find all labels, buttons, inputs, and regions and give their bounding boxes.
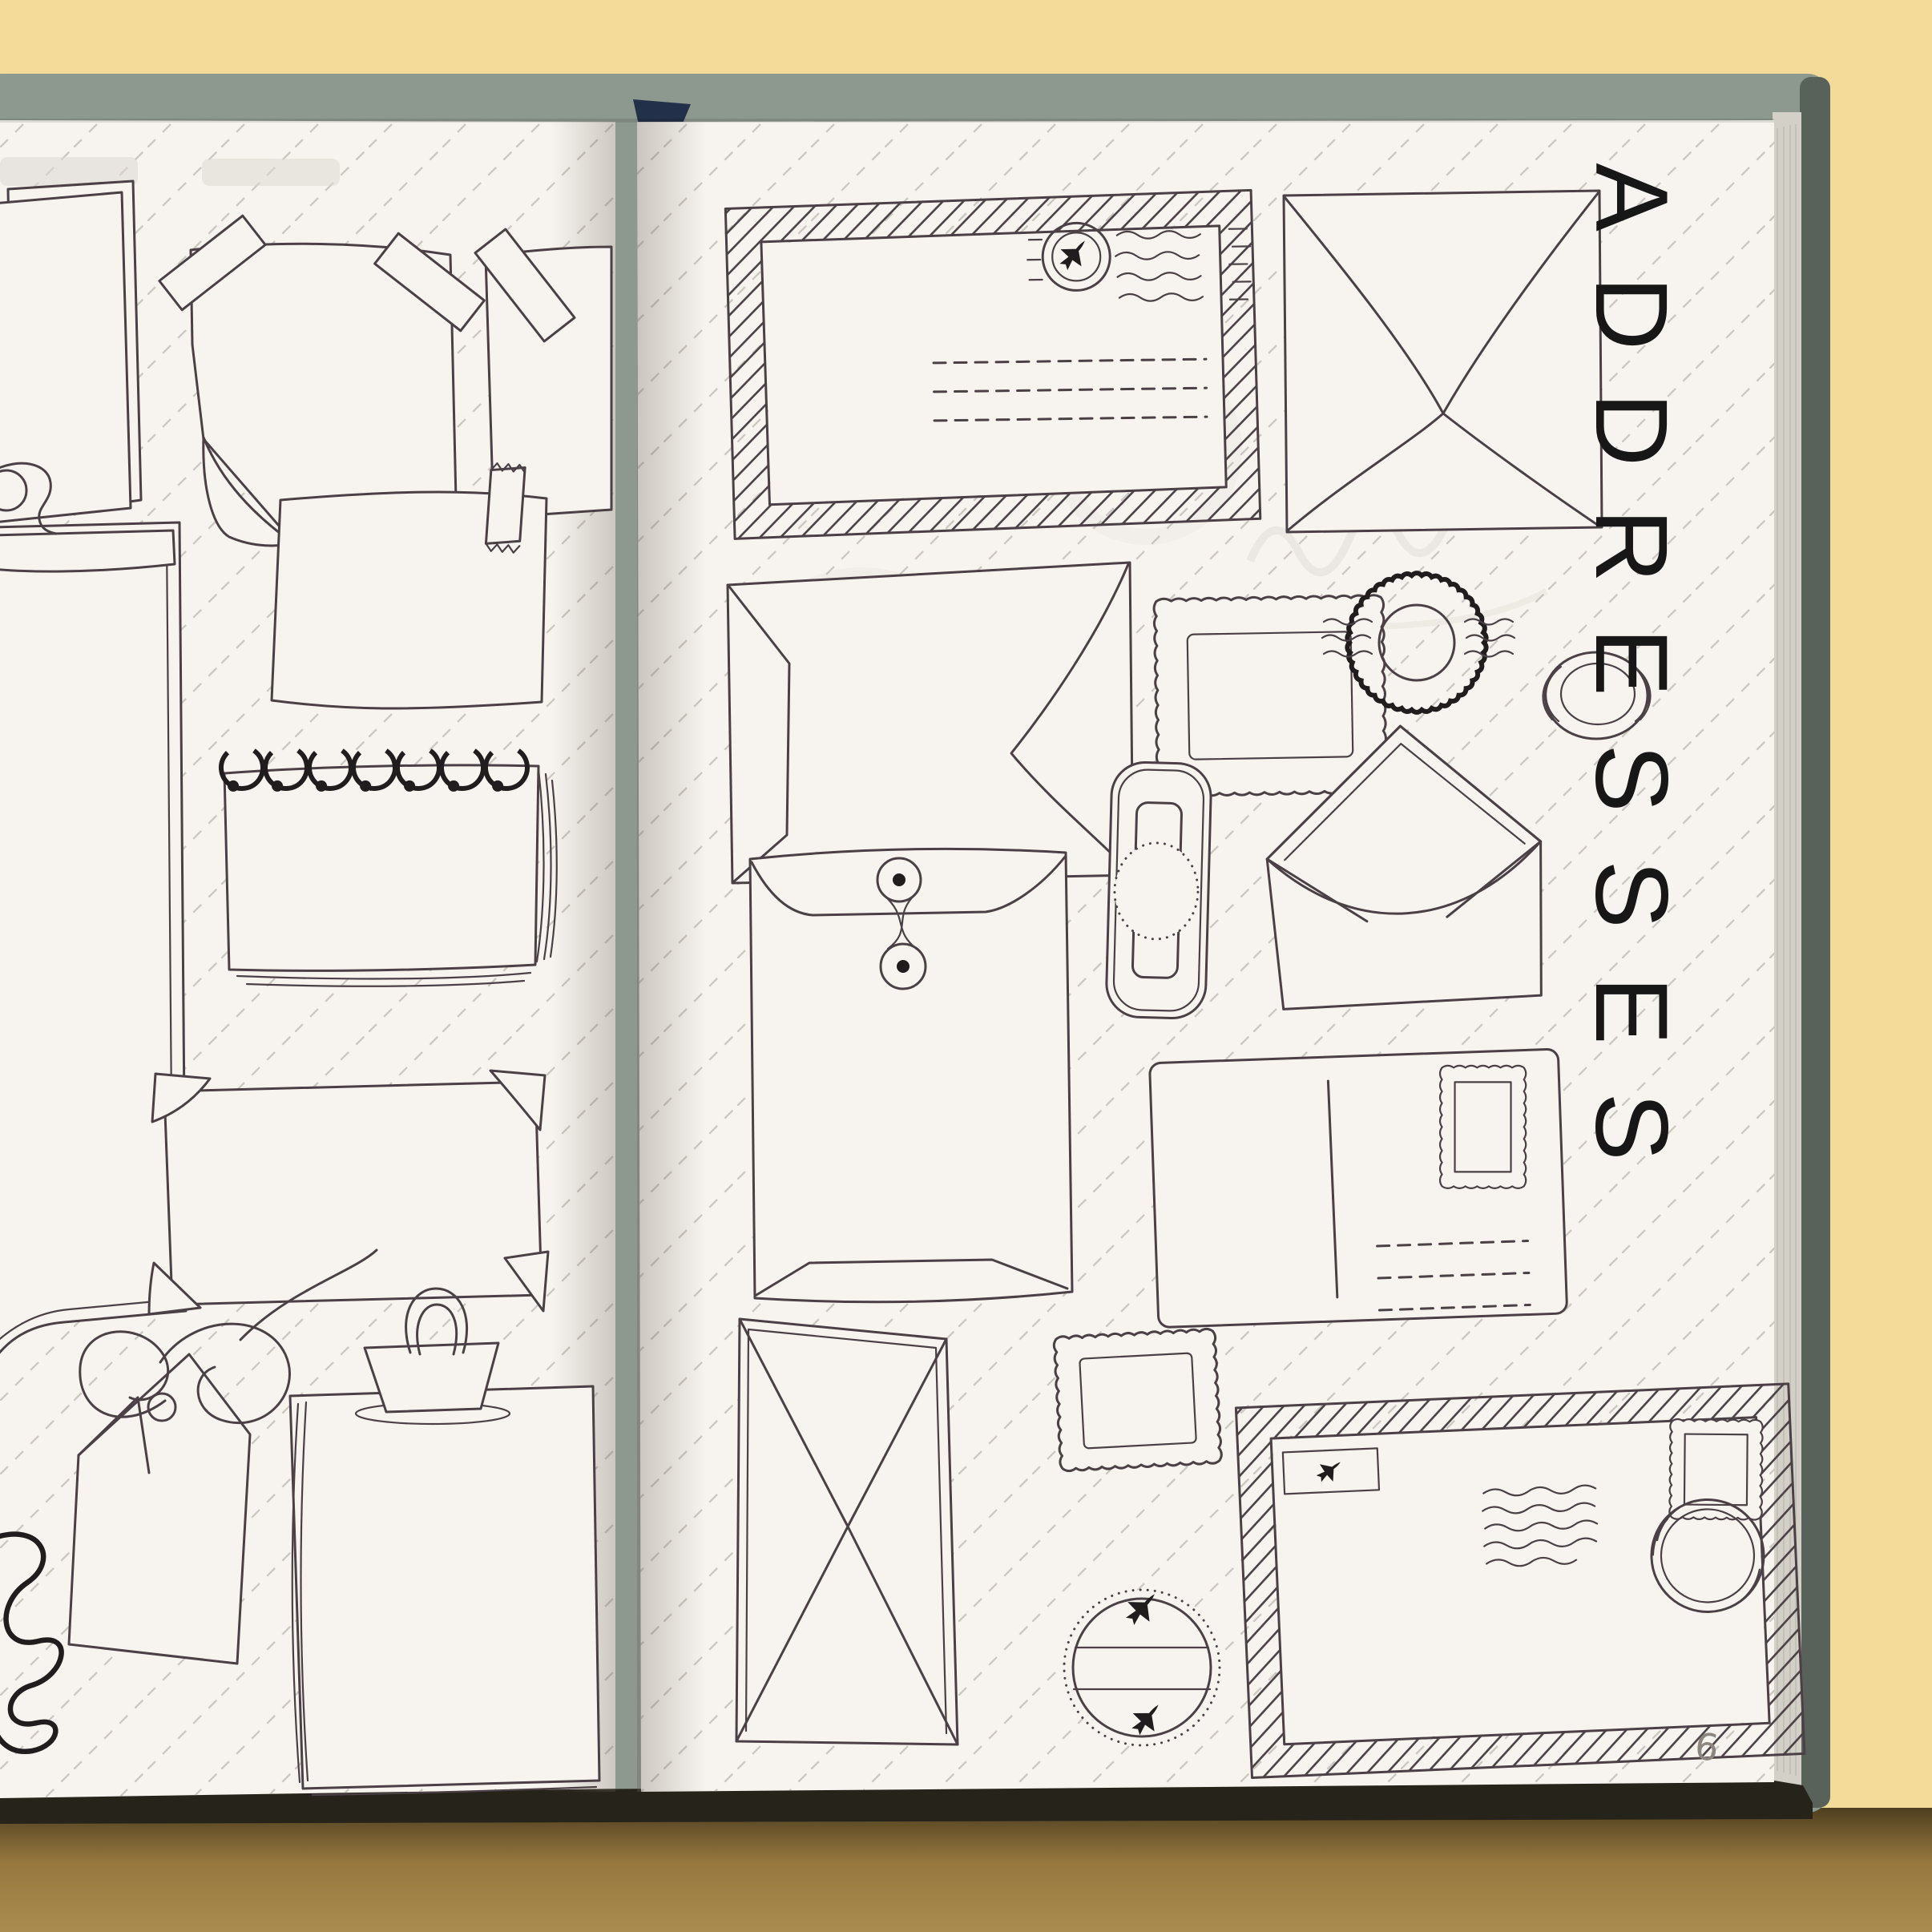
washi-taped-note bbox=[272, 463, 547, 708]
airmail-envelope-hatched-border bbox=[725, 190, 1260, 538]
string-tie-closure-envelope bbox=[750, 849, 1072, 1301]
envelope-back-diamond-flap bbox=[736, 1319, 958, 1744]
airmail-envelope-with-stamp-and-postmark bbox=[1236, 1384, 1804, 1778]
spiral-notepad bbox=[213, 739, 557, 986]
spiral-ring-dot bbox=[360, 780, 371, 792]
stacked-paper-sheets bbox=[0, 181, 141, 522]
postcard-stamp bbox=[1440, 1066, 1526, 1188]
seal-tag-rounded bbox=[1106, 761, 1212, 1018]
journal-scene: ADDRESSES 6 bbox=[0, 0, 1932, 1932]
title-letter: S bbox=[1574, 1092, 1688, 1160]
clip-plate bbox=[0, 530, 175, 571]
ghost-text-bar bbox=[202, 159, 340, 186]
photo-of-open-journal: ADDRESSES 6 bbox=[0, 0, 1932, 1932]
photo-corner-frame bbox=[149, 1071, 548, 1314]
cover-fore-edge bbox=[1800, 77, 1830, 1808]
title-letter: D bbox=[1574, 393, 1688, 466]
spiral-ring-dot bbox=[492, 780, 503, 792]
spiral-ring-dot bbox=[228, 780, 239, 792]
spiral-ring-dot bbox=[448, 780, 459, 792]
postcard-with-stamp bbox=[1149, 1049, 1567, 1328]
spiral-ring-dot bbox=[404, 780, 415, 792]
envelope-back-side-flaps bbox=[728, 563, 1133, 883]
page-title-vertical: ADDRESSES bbox=[1574, 163, 1688, 1160]
sealed-envelope-back bbox=[1284, 191, 1602, 532]
title-letter: R bbox=[1574, 509, 1688, 583]
title-letter: A bbox=[1574, 163, 1688, 232]
washi-tape bbox=[486, 463, 526, 554]
postage-stamp-blank-small bbox=[1054, 1329, 1222, 1471]
title-letter: S bbox=[1574, 744, 1688, 812]
spiral-ring-dot bbox=[316, 780, 327, 792]
title-letter: E bbox=[1574, 976, 1688, 1044]
binder-clip-body bbox=[365, 1343, 498, 1412]
clipboard bbox=[0, 463, 186, 1362]
gutter-shadow-right bbox=[637, 122, 706, 1792]
title-letter: D bbox=[1574, 276, 1688, 350]
title-letter: S bbox=[1574, 860, 1688, 928]
page-top-shadow bbox=[0, 119, 1774, 123]
spiral-ring-dot bbox=[272, 780, 283, 792]
shadow-below-book bbox=[0, 1808, 1932, 1932]
title-letter: E bbox=[1574, 627, 1688, 696]
